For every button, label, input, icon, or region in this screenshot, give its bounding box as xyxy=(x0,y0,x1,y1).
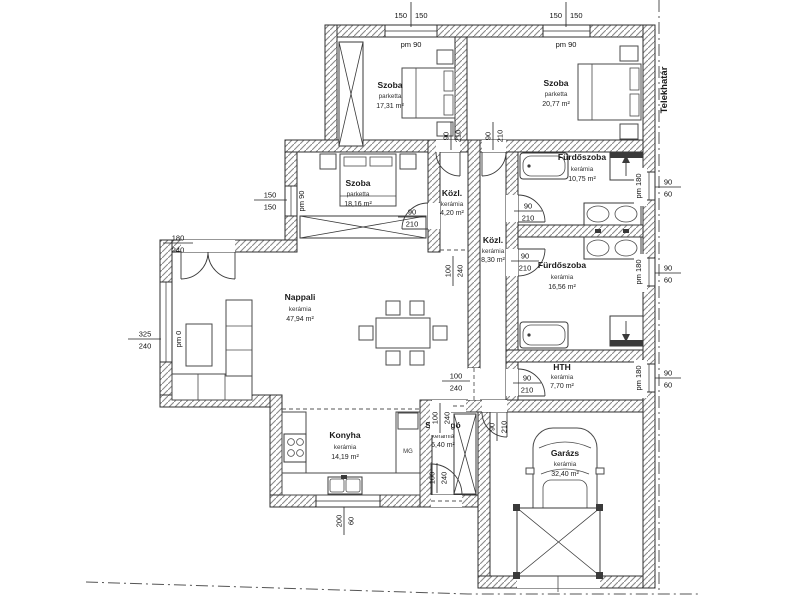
room-label-nappali: Nappalikerámia47,94 m² xyxy=(285,292,316,323)
svg-text:HTH: HTH xyxy=(553,362,570,372)
svg-text:32,40 m²: 32,40 m² xyxy=(551,471,579,478)
svg-text:kerámia: kerámia xyxy=(571,166,594,173)
svg-text:47,94 m²: 47,94 m² xyxy=(286,316,314,323)
svg-text:100: 100 xyxy=(444,265,453,278)
svg-text:60: 60 xyxy=(664,190,672,199)
svg-text:100: 100 xyxy=(450,372,463,381)
svg-text:Konyha: Konyha xyxy=(329,430,360,440)
wardrobe xyxy=(339,42,363,146)
svg-text:210: 210 xyxy=(521,386,534,395)
svg-text:90: 90 xyxy=(484,132,493,140)
floor-plan-page: Telekhatár Szobaparketta17,31 m² Szoba20… xyxy=(0,0,800,600)
room-label-garazs: Garázskerámia32,40 m² xyxy=(551,448,580,478)
svg-text:kerámia: kerámia xyxy=(441,201,464,208)
room-label-hth: HTHkerámia7,70 m² xyxy=(550,362,574,390)
boundary-label: Telekhatár xyxy=(659,66,670,113)
svg-text:100: 100 xyxy=(431,412,440,425)
svg-text:240: 240 xyxy=(440,472,449,485)
window xyxy=(285,186,297,216)
svg-text:180: 180 xyxy=(172,234,185,243)
svg-text:16,56 m²: 16,56 m² xyxy=(548,284,576,291)
svg-text:Szoba: Szoba xyxy=(377,80,402,90)
svg-text:20,77 m²: 20,77 m² xyxy=(542,101,570,108)
svg-text:18,16 m²: 18,16 m² xyxy=(344,201,372,208)
svg-text:Szoba: Szoba xyxy=(345,178,370,188)
bed xyxy=(402,50,455,136)
svg-text:kerámia: kerámia xyxy=(551,374,574,381)
svg-text:90: 90 xyxy=(664,264,672,273)
svg-text:100: 100 xyxy=(428,472,437,485)
svg-text:210: 210 xyxy=(406,220,419,229)
floor-plan-canvas: Telekhatár Szobaparketta17,31 m² Szoba20… xyxy=(0,0,800,600)
svg-text:325: 325 xyxy=(139,330,152,339)
svg-text:4,20 m²: 4,20 m² xyxy=(440,210,464,217)
svg-text:kerámia: kerámia xyxy=(482,248,505,255)
double-door xyxy=(181,252,235,279)
svg-text:Nappali: Nappali xyxy=(285,292,316,302)
window xyxy=(316,495,380,507)
room-label-szoba1: Szobaparketta17,31 m² xyxy=(376,80,404,110)
svg-text:kerámia: kerámia xyxy=(334,444,357,451)
svg-text:150: 150 xyxy=(264,203,277,212)
svg-text:150: 150 xyxy=(394,11,407,20)
svg-text:240: 240 xyxy=(443,412,452,425)
room-label-furdoszoba2: Fürdőszobakerámia16,56 m² xyxy=(538,260,586,291)
svg-text:7,70 m²: 7,70 m² xyxy=(550,383,574,390)
svg-text:Garázs: Garázs xyxy=(551,448,580,458)
svg-text:kerámia: kerámia xyxy=(551,274,574,281)
pm-label: pm 180 xyxy=(634,259,643,284)
svg-text:Szoba: Szoba xyxy=(543,78,568,88)
pm-label: pm 90 xyxy=(297,191,306,212)
room-label-kozl2: Közl.kerámia8,30 m² xyxy=(481,235,505,264)
svg-text:parketta: parketta xyxy=(379,93,402,100)
svg-text:150: 150 xyxy=(264,191,277,200)
svg-text:Fürdőszoba: Fürdőszoba xyxy=(558,152,606,162)
svg-text:90: 90 xyxy=(664,369,672,378)
door xyxy=(482,152,506,176)
svg-text:90: 90 xyxy=(442,132,451,140)
svg-text:Fürdőszoba: Fürdőszoba xyxy=(538,260,586,270)
dim-open-nappali: 100240 xyxy=(442,372,470,393)
svg-text:90: 90 xyxy=(521,252,529,261)
sink xyxy=(328,475,362,494)
svg-text:60: 60 xyxy=(664,381,672,390)
svg-text:240: 240 xyxy=(172,246,185,255)
pm-label: pm 0 xyxy=(174,331,183,348)
svg-text:90: 90 xyxy=(524,202,532,211)
svg-text:210: 210 xyxy=(454,130,463,143)
dim-win-top1: 150150 xyxy=(394,2,427,27)
dim-win-konyha: 20060 xyxy=(335,507,356,535)
svg-text:150: 150 xyxy=(415,11,428,20)
pm-label: pm 90 xyxy=(556,40,577,49)
svg-text:150: 150 xyxy=(549,11,562,20)
pm-label: pm 90 xyxy=(401,40,422,49)
svg-text:6,40 m²: 6,40 m² xyxy=(431,442,455,449)
room-label-kozl1: Közl.kerámia4,20 m² xyxy=(440,188,464,217)
svg-text:210: 210 xyxy=(522,214,535,223)
svg-text:90: 90 xyxy=(523,374,531,383)
svg-text:60: 60 xyxy=(347,517,356,525)
svg-text:90: 90 xyxy=(488,423,497,431)
bathtub xyxy=(520,322,568,348)
svg-text:kerámia: kerámia xyxy=(554,461,577,468)
room-label-konyha: Konyhakerámia14,19 m² xyxy=(329,430,360,461)
dim-win-top2: 150150 xyxy=(549,2,582,27)
svg-text:8,30 m²: 8,30 m² xyxy=(481,257,505,264)
pm-label: pm 180 xyxy=(634,173,643,198)
dining-set xyxy=(359,301,447,365)
svg-text:240: 240 xyxy=(139,342,152,351)
svg-text:200: 200 xyxy=(335,515,344,528)
room-label-szoba2: Szoba20,77 m²parketta20,77 m² xyxy=(542,78,570,108)
shower xyxy=(610,316,643,346)
svg-text:kerámia: kerámia xyxy=(289,306,312,313)
svg-text:90: 90 xyxy=(408,208,416,217)
window xyxy=(543,25,590,37)
dim-open-szelfogo: 100240 xyxy=(430,401,452,435)
stove xyxy=(284,434,306,462)
window xyxy=(160,282,172,362)
coffee-table xyxy=(186,324,212,366)
dim-win-nappali: 325240 xyxy=(128,330,161,351)
svg-text:90: 90 xyxy=(664,178,672,187)
dishwasher-label: MG xyxy=(403,449,413,455)
svg-text:Közl.: Közl. xyxy=(442,188,462,198)
pm-label: pm 180 xyxy=(634,365,643,390)
svg-text:240: 240 xyxy=(456,265,465,278)
room-label-szoba3: Szobaparketta18,16 m² xyxy=(344,178,372,208)
svg-text:parketta: parketta xyxy=(347,191,370,198)
svg-text:10,75 m²: 10,75 m² xyxy=(568,176,596,183)
svg-text:60: 60 xyxy=(664,276,672,285)
svg-text:14,19 m²: 14,19 m² xyxy=(331,454,359,461)
svg-text:17,31 m²: 17,31 m² xyxy=(376,103,404,110)
dim-win-szoba3: 150150 xyxy=(254,191,287,212)
svg-text:210: 210 xyxy=(500,421,509,434)
svg-text:240: 240 xyxy=(450,384,463,393)
svg-text:210: 210 xyxy=(519,264,532,273)
svg-text:Közl.: Közl. xyxy=(483,235,503,245)
svg-text:parketta: parketta xyxy=(545,91,568,98)
svg-text:210: 210 xyxy=(496,130,505,143)
svg-text:150: 150 xyxy=(570,11,583,20)
bed xyxy=(578,46,641,139)
dim-open-kozl: 100240 xyxy=(444,256,465,286)
